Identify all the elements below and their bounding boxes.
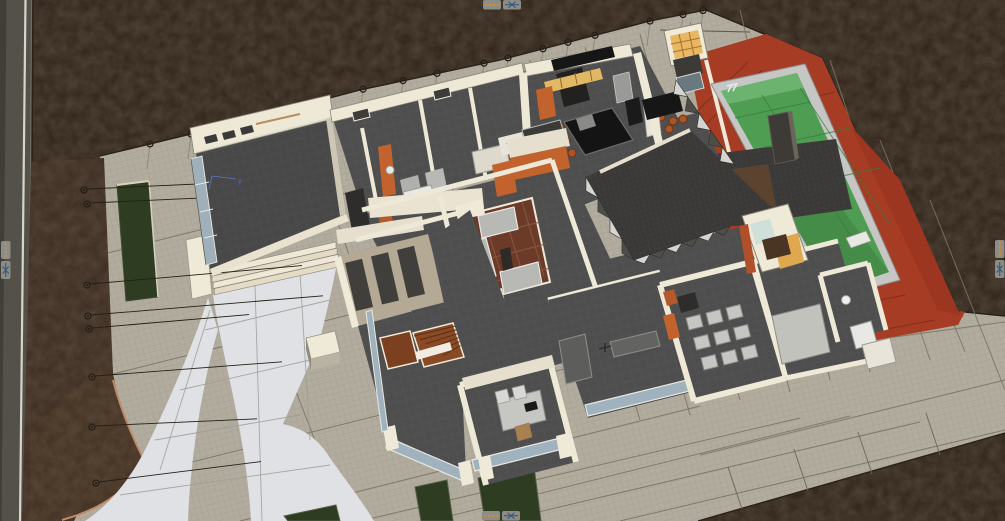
svg-text:y: y [238,178,242,185]
